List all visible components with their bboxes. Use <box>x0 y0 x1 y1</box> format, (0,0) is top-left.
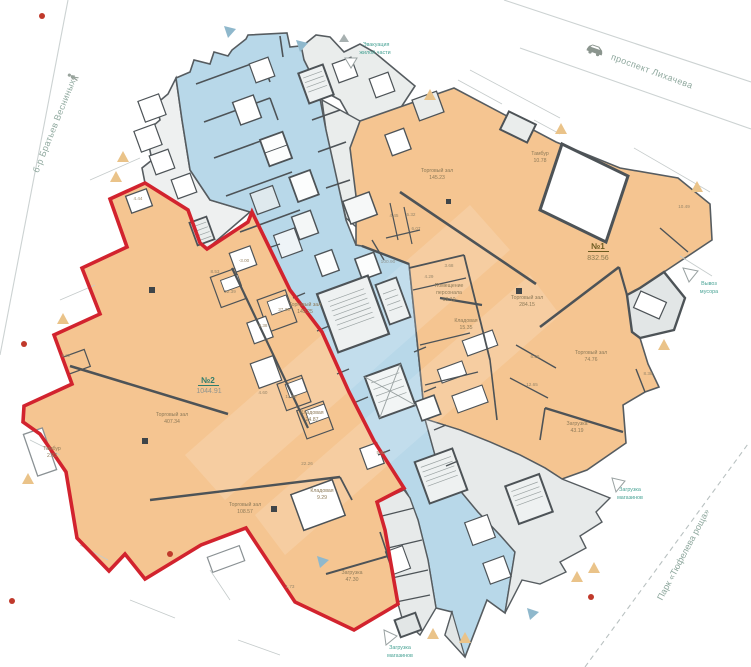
svg-text:Тамбур: Тамбур <box>43 446 61 452</box>
svg-text:4.29: 4.29 <box>425 274 434 279</box>
svg-text:18.10: 18.10 <box>443 297 456 303</box>
svg-text:Торговый зал: Торговый зал <box>156 411 188 418</box>
svg-text:4.45: 4.45 <box>390 213 399 218</box>
svg-text:43.19: 43.19 <box>571 428 584 434</box>
svg-text:Кладовая: Кладовая <box>300 410 323 416</box>
svg-text:Кладовая: Кладовая <box>454 318 477 324</box>
svg-text:832.56: 832.56 <box>587 255 609 262</box>
svg-text:4.44: 4.44 <box>134 196 143 201</box>
svg-text:6.26: 6.26 <box>531 354 540 359</box>
svg-text:Торговый зал: Торговый зал <box>575 349 607 356</box>
svg-text:5.83: 5.83 <box>377 450 386 455</box>
svg-text:10.78: 10.78 <box>534 158 547 164</box>
svg-text:145.23: 145.23 <box>429 175 445 181</box>
svg-text:Торговый зал: Торговый зал <box>421 167 453 174</box>
svg-text:Эвакуация: Эвакуация <box>363 42 390 48</box>
svg-text:-3.00: -3.00 <box>239 258 250 263</box>
svg-text:11.89: 11.89 <box>285 394 297 399</box>
svg-text:12.65: 12.65 <box>526 382 538 387</box>
svg-text:22.26: 22.26 <box>301 461 313 466</box>
svg-text:10.49: 10.49 <box>678 204 690 209</box>
svg-text:47.30: 47.30 <box>346 577 359 583</box>
svg-text:8.53: 8.53 <box>211 269 220 274</box>
svg-text:15.35: 15.35 <box>460 325 473 331</box>
svg-text:100.90: 100.90 <box>381 259 396 265</box>
svg-text:Торговый зал: Торговый зал <box>511 294 543 301</box>
svg-text:Загрузка: Загрузка <box>567 421 588 427</box>
svg-text:Загрузка: Загрузка <box>342 570 363 576</box>
svg-text:Помещение: Помещение <box>435 283 464 289</box>
svg-text:Кладовая: Кладовая <box>310 488 333 494</box>
svg-text:24.87: 24.87 <box>306 417 319 423</box>
svg-text:12.39: 12.39 <box>224 289 236 294</box>
svg-text:9.29: 9.29 <box>317 495 327 501</box>
svg-text:8.38: 8.38 <box>259 323 268 328</box>
svg-text:6.07: 6.07 <box>412 226 421 231</box>
svg-text:Вывоз: Вывоз <box>701 281 717 287</box>
svg-text:№2: №2 <box>201 376 215 385</box>
svg-text:Торговый зал: Торговый зал <box>229 501 261 508</box>
svg-text:5.32: 5.32 <box>407 212 416 217</box>
svg-text:74.76: 74.76 <box>585 357 598 363</box>
svg-text:Загрузка: Загрузка <box>619 487 641 493</box>
svg-text:9.22: 9.22 <box>62 353 71 358</box>
svg-text:магазинов: магазинов <box>617 495 643 501</box>
svg-text:4.60: 4.60 <box>259 390 268 395</box>
svg-text:Торговый зал: Торговый зал <box>289 301 321 308</box>
svg-text:8.38: 8.38 <box>644 371 653 376</box>
svg-text:108.57: 108.57 <box>237 509 253 515</box>
svg-text:магазинов: магазинов <box>387 653 413 659</box>
svg-text:149.25: 149.25 <box>297 309 313 315</box>
svg-text:Тамбур: Тамбур <box>531 151 549 157</box>
svg-text:284.15: 284.15 <box>519 302 535 308</box>
svg-text:персонала: персонала <box>436 290 462 296</box>
svg-text:Загрузка: Загрузка <box>389 645 411 651</box>
svg-text:2.33: 2.33 <box>47 453 57 459</box>
svg-text:37.35: 37.35 <box>278 307 290 312</box>
svg-text:жилой части: жилой части <box>359 49 390 56</box>
svg-text:1044.91: 1044.91 <box>196 388 221 395</box>
svg-text:№1: №1 <box>591 242 605 251</box>
svg-text:407.34: 407.34 <box>164 419 180 425</box>
svg-text:3.68: 3.68 <box>445 263 454 268</box>
svg-text:1.73: 1.73 <box>286 584 295 589</box>
svg-text:мусора: мусора <box>700 289 718 295</box>
